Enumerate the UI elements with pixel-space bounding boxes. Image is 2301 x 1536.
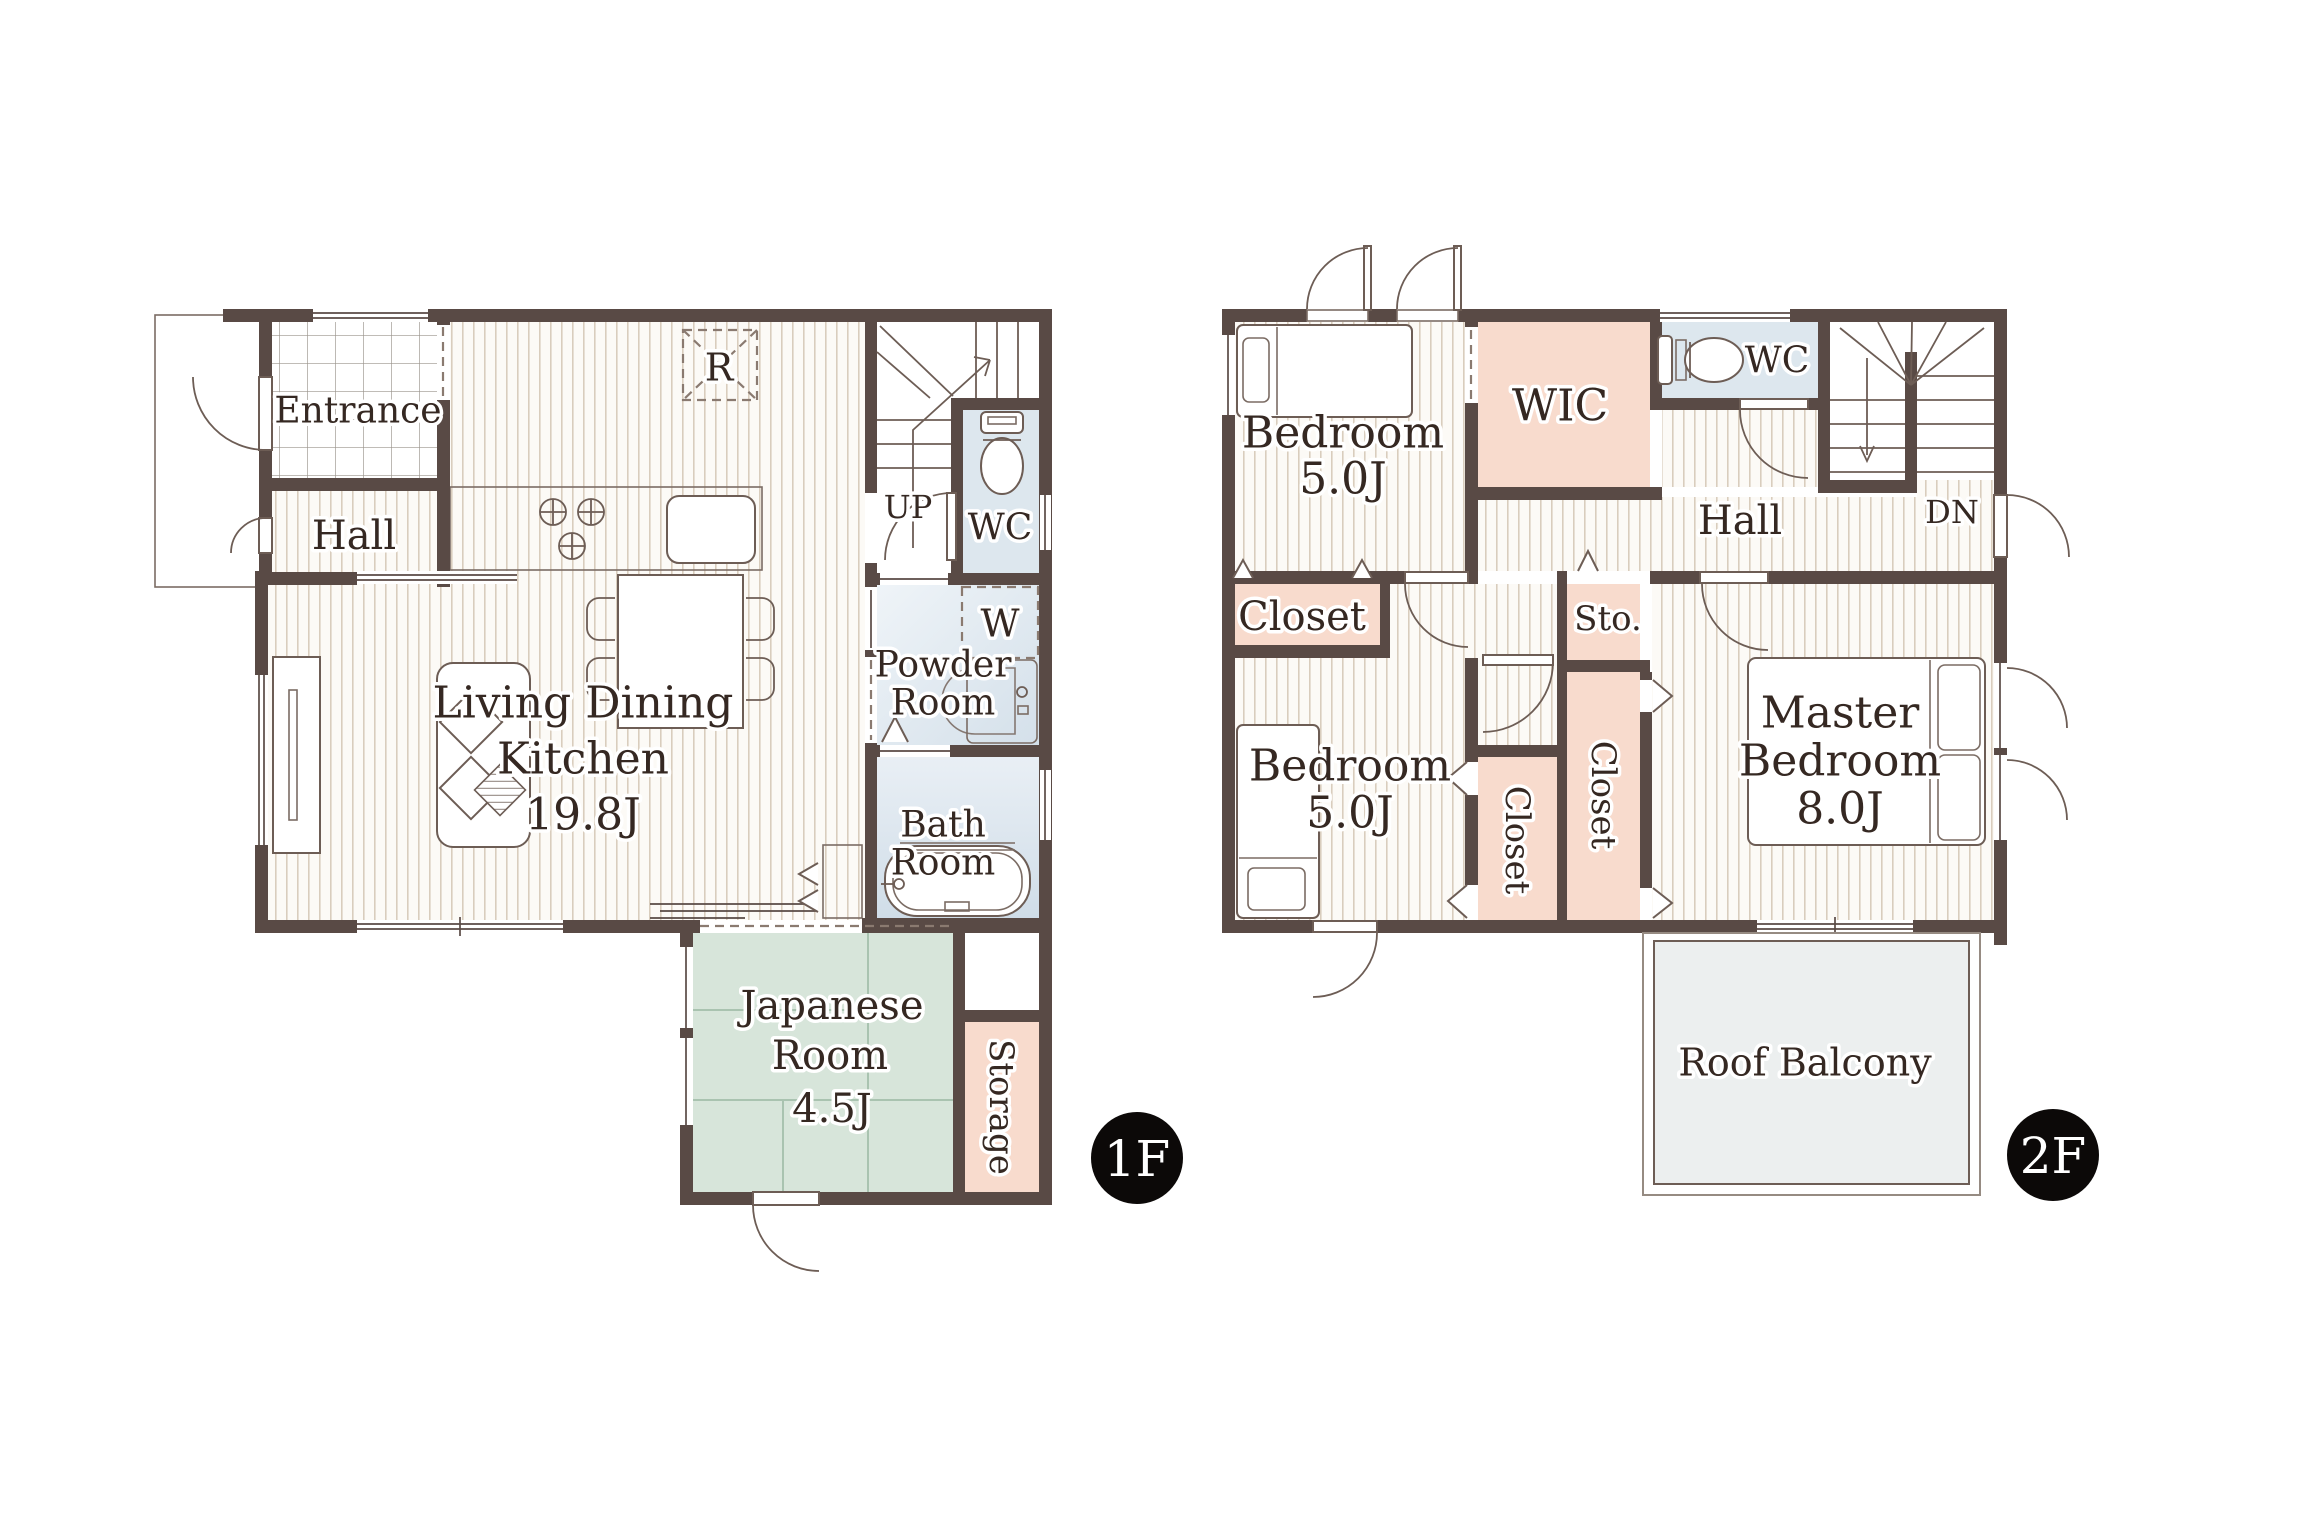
void-space (965, 933, 1039, 1010)
closet2-label: Closet (1497, 786, 1537, 895)
floor-plan-drawing: R (0, 0, 2301, 1536)
stairs-up-label: UP (884, 488, 933, 526)
wc-label-1f: WC (968, 508, 1033, 549)
master-bedroom-label-3: 8.0J (1796, 783, 1884, 834)
ldk-label-2: Kitchen (497, 733, 669, 784)
ldk-label-3: 19.8J (525, 789, 641, 840)
japanese-room-label-1: Japanese (737, 983, 924, 1029)
floor-badge-2f-label: 2F (2020, 1127, 2087, 1185)
floor-plan-page: R (0, 0, 2301, 1536)
storage-label: Storage (981, 1039, 1021, 1175)
ldk-label-1: Living Dining (433, 677, 734, 728)
washer-label: W (980, 601, 1019, 645)
toilet-icon-2f (1658, 336, 1743, 384)
master-bedroom-label-1: Master (1761, 687, 1921, 738)
sto-label: Sto. (1574, 599, 1642, 639)
powder-room-label-1: Powder (875, 645, 1013, 686)
floor-1f-plan: R (155, 309, 1183, 1271)
bedroom1-label-1: Bedroom (1242, 407, 1444, 458)
closet1-label: Closet (1238, 594, 1366, 640)
japanese-room-label-3: 4.5J (792, 1086, 872, 1132)
tv-board-icon (273, 657, 320, 853)
powder-room-label-2: Room (891, 683, 996, 724)
entrance-label: Entrance (274, 391, 441, 432)
hall-floor-2f-a (1662, 410, 1830, 487)
bedroom2-label-1: Bedroom (1249, 740, 1451, 791)
roof-balcony-label: Roof Balcony (1678, 1040, 1932, 1084)
bedroom1-label-2: 5.0J (1299, 453, 1387, 504)
master-bedroom-label-2: Bedroom (1739, 735, 1941, 786)
refrigerator-label: R (705, 345, 735, 389)
hall-label-1f: Hall (312, 513, 396, 559)
closet3-label: Closet (1583, 741, 1623, 850)
toilet-icon-1f (981, 412, 1023, 494)
japanese-room-label-2: Room (772, 1033, 888, 1079)
bath-room-label-2: Room (891, 843, 996, 884)
hall-label-2f: Hall (1698, 498, 1782, 544)
wic-label: WIC (1512, 380, 1608, 431)
bath-room-label-1: Bath (900, 805, 986, 846)
wc-label-2f: WC (1745, 341, 1810, 382)
kitchen-sink-icon (667, 496, 755, 563)
bedroom2-label-2: 5.0J (1306, 787, 1394, 838)
floor-badge-1f-label: 1F (1104, 1130, 1171, 1188)
stairs-dn-label: DN (1925, 493, 1979, 531)
floor-2f-plan: Bedroom 5.0J WIC WC Hall DN Closet Sto. … (1222, 246, 2099, 1201)
bed-icon-bedroom1 (1237, 325, 1412, 417)
